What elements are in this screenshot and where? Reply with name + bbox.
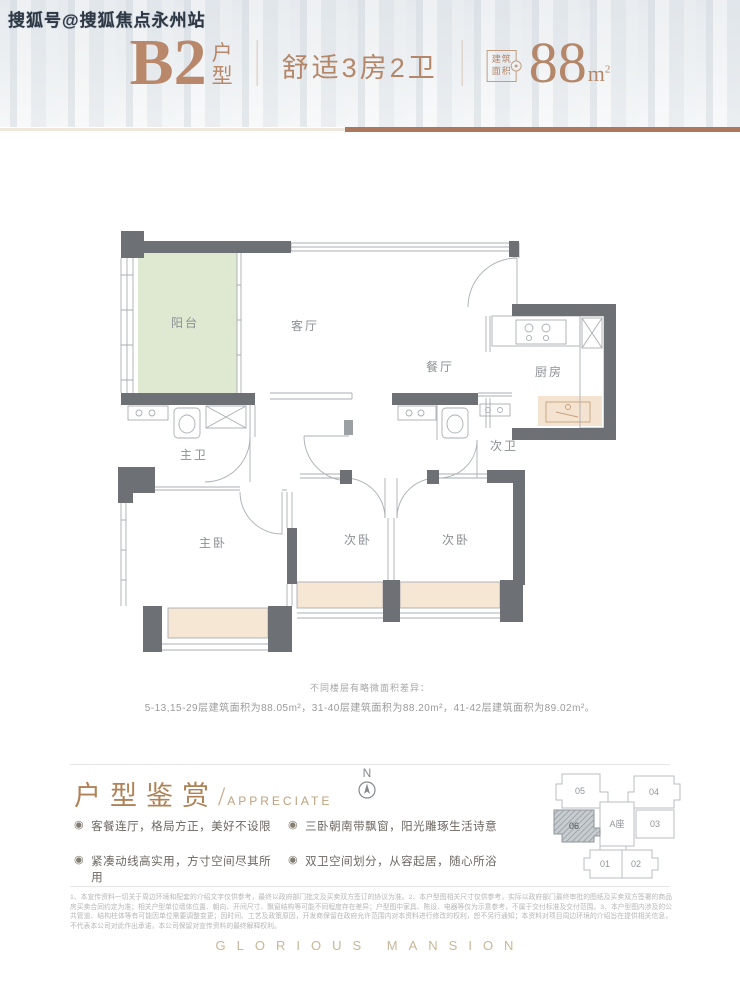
watermark: 搜狐号@搜狐焦点永州站 [8, 6, 206, 31]
room-label-balcony: 阳台 [171, 315, 199, 330]
area-badge-seal-icon [511, 61, 522, 72]
keyplan-label-06: 06 [569, 821, 579, 831]
kitchen-sink-counter [538, 396, 602, 426]
bullet-text: 三卧朝南带飘窗，阳光雕琢生活诗意 [305, 818, 497, 834]
header-rule-brown [345, 127, 740, 132]
unit-subtitle: 舒适3房2卫 [282, 46, 438, 85]
section-divider-bottom [70, 886, 670, 887]
appreciate-title: 户型鉴赏 [74, 780, 218, 812]
room-label-kitchen: 厨房 [535, 364, 563, 379]
area-unit: m2 [588, 61, 611, 87]
appreciate-header: 户型鉴赏 / APPRECIATE [74, 780, 332, 812]
bed2-bay-window [297, 582, 383, 608]
bullet-text: 客餐连厅，格局方正，美好不设限 [91, 818, 271, 834]
bullet-text: 紧凑动线高实用，方寸空间尽其所用 [91, 853, 272, 885]
floor-plan: 阳台 客厅 餐厅 厨房 主卫 次卫 主卧 次卧 次卧 [85, 225, 645, 670]
title-divider-left [257, 40, 258, 86]
room-label-living: 客厅 [291, 318, 319, 333]
room-label-master-bath: 主卫 [180, 448, 208, 462]
unit-code: B2 [130, 30, 207, 96]
building-key-plan: 05 04 06 A座 03 01 02 [538, 762, 700, 884]
bullet-icon: ◉ [288, 853, 298, 867]
bullet-icon: ◉ [74, 818, 84, 832]
disclaimer-text: 1、本宣传资料一切关于周边环境和配套的介绍文字仅供参考，最终以政府部门批文及买卖… [70, 893, 672, 931]
area-badge-line1: 建筑 [492, 54, 512, 66]
keyplan-label-center: A座 [609, 818, 624, 829]
room-label-master-bed: 主卧 [199, 536, 227, 550]
room-label-bed3: 次卧 [442, 533, 470, 547]
keyplan-connector [590, 846, 626, 850]
room-label-dining: 餐厅 [426, 359, 454, 374]
compass-north-label: N [354, 766, 380, 780]
area-note-line2: 5-13,15-29层建筑面积为88.05m²，31-40层建筑面积为88.20… [0, 699, 740, 714]
bullet-icon: ◉ [74, 853, 84, 867]
unit-title-row: B2 户 型 舒适3房2卫 建筑 面积 88 m2 [130, 30, 611, 96]
area-unit-sup: 2 [605, 64, 611, 76]
appreciate-title-en: APPRECIATE [227, 794, 332, 808]
bullet-icon: ◉ [288, 818, 298, 832]
keyplan-label-03: 03 [650, 819, 660, 829]
title-divider-right [462, 40, 463, 86]
unit-suffix-char-2: 型 [212, 66, 233, 89]
area-badge: 建筑 面积 [487, 50, 517, 81]
room-label-second-bath: 次卫 [490, 439, 518, 453]
compass-icon [357, 780, 377, 800]
area-value: 88 [529, 34, 587, 92]
area-unit-m: m [588, 61, 605, 86]
bullet-item: ◉ 紧凑动线高实用，方寸空间尽其所用 [74, 853, 272, 885]
compass: N [354, 766, 380, 805]
footer-logo: GLORIOUS MANSION [0, 938, 740, 953]
header-rule-light [0, 127, 345, 131]
area-note: 不同楼层有略微面积差异： 5-13,15-29层建筑面积为88.05m²，31-… [0, 681, 740, 714]
keyplan-label-04: 04 [649, 787, 659, 797]
master-bay-window [168, 608, 268, 638]
bed3-bay-window [400, 582, 500, 608]
header-rule [0, 126, 740, 132]
unit-suffix: 户 型 [212, 43, 233, 88]
area-note-line1: 不同楼层有略微面积差异： [0, 681, 740, 694]
bullet-item: ◉ 客餐连厅，格局方正，美好不设限 [74, 818, 272, 834]
keyplan-label-01: 01 [600, 859, 610, 869]
area-badge-line2: 面积 [492, 66, 512, 78]
keyplan-label-05: 05 [575, 786, 585, 796]
bullet-text: 双卫空间划分，从容起居，随心所浴 [305, 853, 497, 869]
appreciate-slash: / [218, 782, 225, 812]
keyplan-label-02: 02 [631, 859, 641, 869]
room-label-bed2: 次卧 [344, 533, 372, 547]
unit-suffix-char-1: 户 [212, 43, 233, 66]
